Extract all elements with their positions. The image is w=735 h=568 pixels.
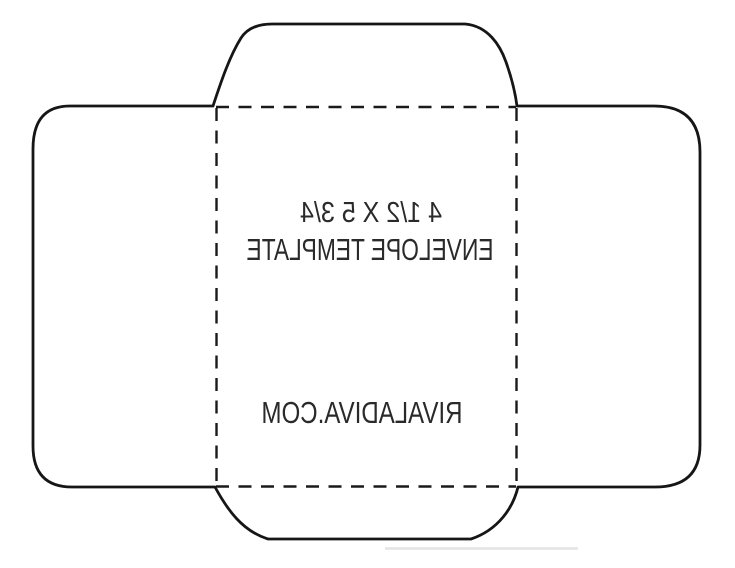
page-background bbox=[0, 0, 735, 568]
envelope-template-canvas: 4 1/2 X 5 3/4 ENVELOPE TEMPLATE RIVALADI… bbox=[0, 0, 735, 568]
size-label: 4 1/2 X 5 3/4 bbox=[300, 197, 442, 229]
envelope-template-page: 4 1/2 X 5 3/4 ENVELOPE TEMPLATE RIVALADI… bbox=[0, 0, 735, 568]
brand-url-label: RIVALADIVA.COM bbox=[262, 395, 463, 430]
type-label: ENVELOPE TEMPLATE bbox=[247, 232, 494, 267]
